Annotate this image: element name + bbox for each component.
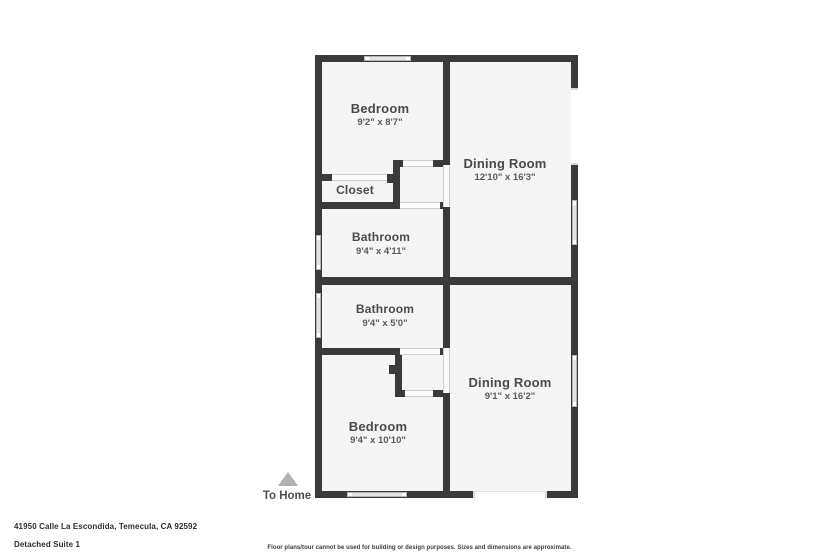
door-dining2 <box>443 348 450 393</box>
door-bedroom1 <box>403 160 433 167</box>
wall-bath-dining-upper <box>443 207 450 285</box>
wall-closet-stub <box>315 174 332 181</box>
door-bathroom2 <box>400 348 440 355</box>
room-name: Dining Room <box>450 375 570 390</box>
room-dining-upper: Dining Room 12'10" x 16'3" <box>445 156 565 184</box>
wall-bedroom2-top-a <box>395 390 405 397</box>
wall-unit-divider <box>315 277 578 285</box>
floorplan-page: Bedroom 9'2" x 8'7" Dining Room 12'10" x… <box>0 0 839 560</box>
disclaimer-text: Floor plans/tour cannot be used for buil… <box>0 545 839 551</box>
window-bottom-bedroom <box>347 492 407 497</box>
entry-arrow-icon <box>278 472 298 486</box>
floorplan-drawing: Bedroom 9'2" x 8'7" Dining Room 12'10" x… <box>315 55 578 498</box>
room-dimensions: 12'10" x 16'3" <box>445 172 565 184</box>
room-name: Closet <box>315 183 395 198</box>
door-bedroom2 <box>405 390 433 397</box>
room-dimensions: 9'4" x 10'10" <box>318 435 438 447</box>
room-name: Bedroom <box>318 419 438 434</box>
opening-bottom-dining2 <box>473 491 547 498</box>
property-address: 41950 Calle La Escondida, Temecula, CA 9… <box>14 522 197 531</box>
room-name: Bedroom <box>320 101 440 116</box>
room-bathroom-upper: Bathroom 9'4" x 4'11" <box>321 230 441 258</box>
room-name: Dining Room <box>445 156 565 171</box>
room-dining-lower: Dining Room 9'1" x 16'2" <box>450 375 570 403</box>
room-dimensions: 9'4" x 5'0" <box>325 318 445 330</box>
window-right-lower <box>572 355 577 407</box>
door-bathroom1 <box>400 202 440 209</box>
room-name: Bathroom <box>325 302 445 317</box>
wall-bathroom2-bottom <box>315 348 400 355</box>
room-bedroom-lower: Bedroom 9'4" x 10'10" <box>318 419 438 447</box>
entry-label: To Home <box>252 490 322 502</box>
wall-closet-jamb <box>387 174 393 183</box>
wall-bathroom1-top <box>315 202 400 209</box>
room-dimensions: 9'2" x 8'7" <box>320 117 440 129</box>
window-left-bath2 <box>316 293 321 338</box>
opening-right-dining1 <box>571 88 578 165</box>
room-name: Bathroom <box>321 230 441 245</box>
wall-nook-jamb <box>389 365 395 374</box>
window-right-mid <box>572 200 577 245</box>
wall-bedroom-dining-upper <box>443 55 450 165</box>
window-top <box>364 56 411 61</box>
room-dimensions: 9'1" x 16'2" <box>450 391 570 403</box>
room-bedroom-upper: Bedroom 9'2" x 8'7" <box>320 101 440 129</box>
room-bathroom-lower: Bathroom 9'4" x 5'0" <box>325 302 445 330</box>
room-dimensions: 9'4" x 4'11" <box>321 246 441 258</box>
room-closet: Closet <box>315 183 395 198</box>
door-closet <box>332 174 387 181</box>
wall-bedroom-dining-lower <box>443 393 450 498</box>
